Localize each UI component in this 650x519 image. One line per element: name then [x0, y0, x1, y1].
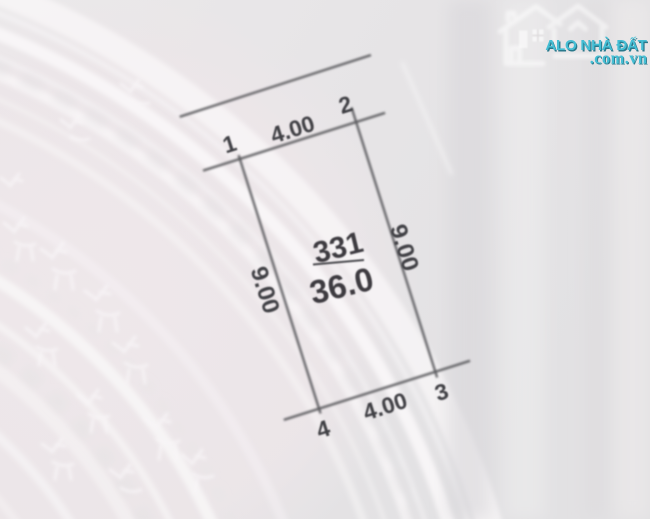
- svg-text:.com.vn: .com.vn: [590, 49, 648, 68]
